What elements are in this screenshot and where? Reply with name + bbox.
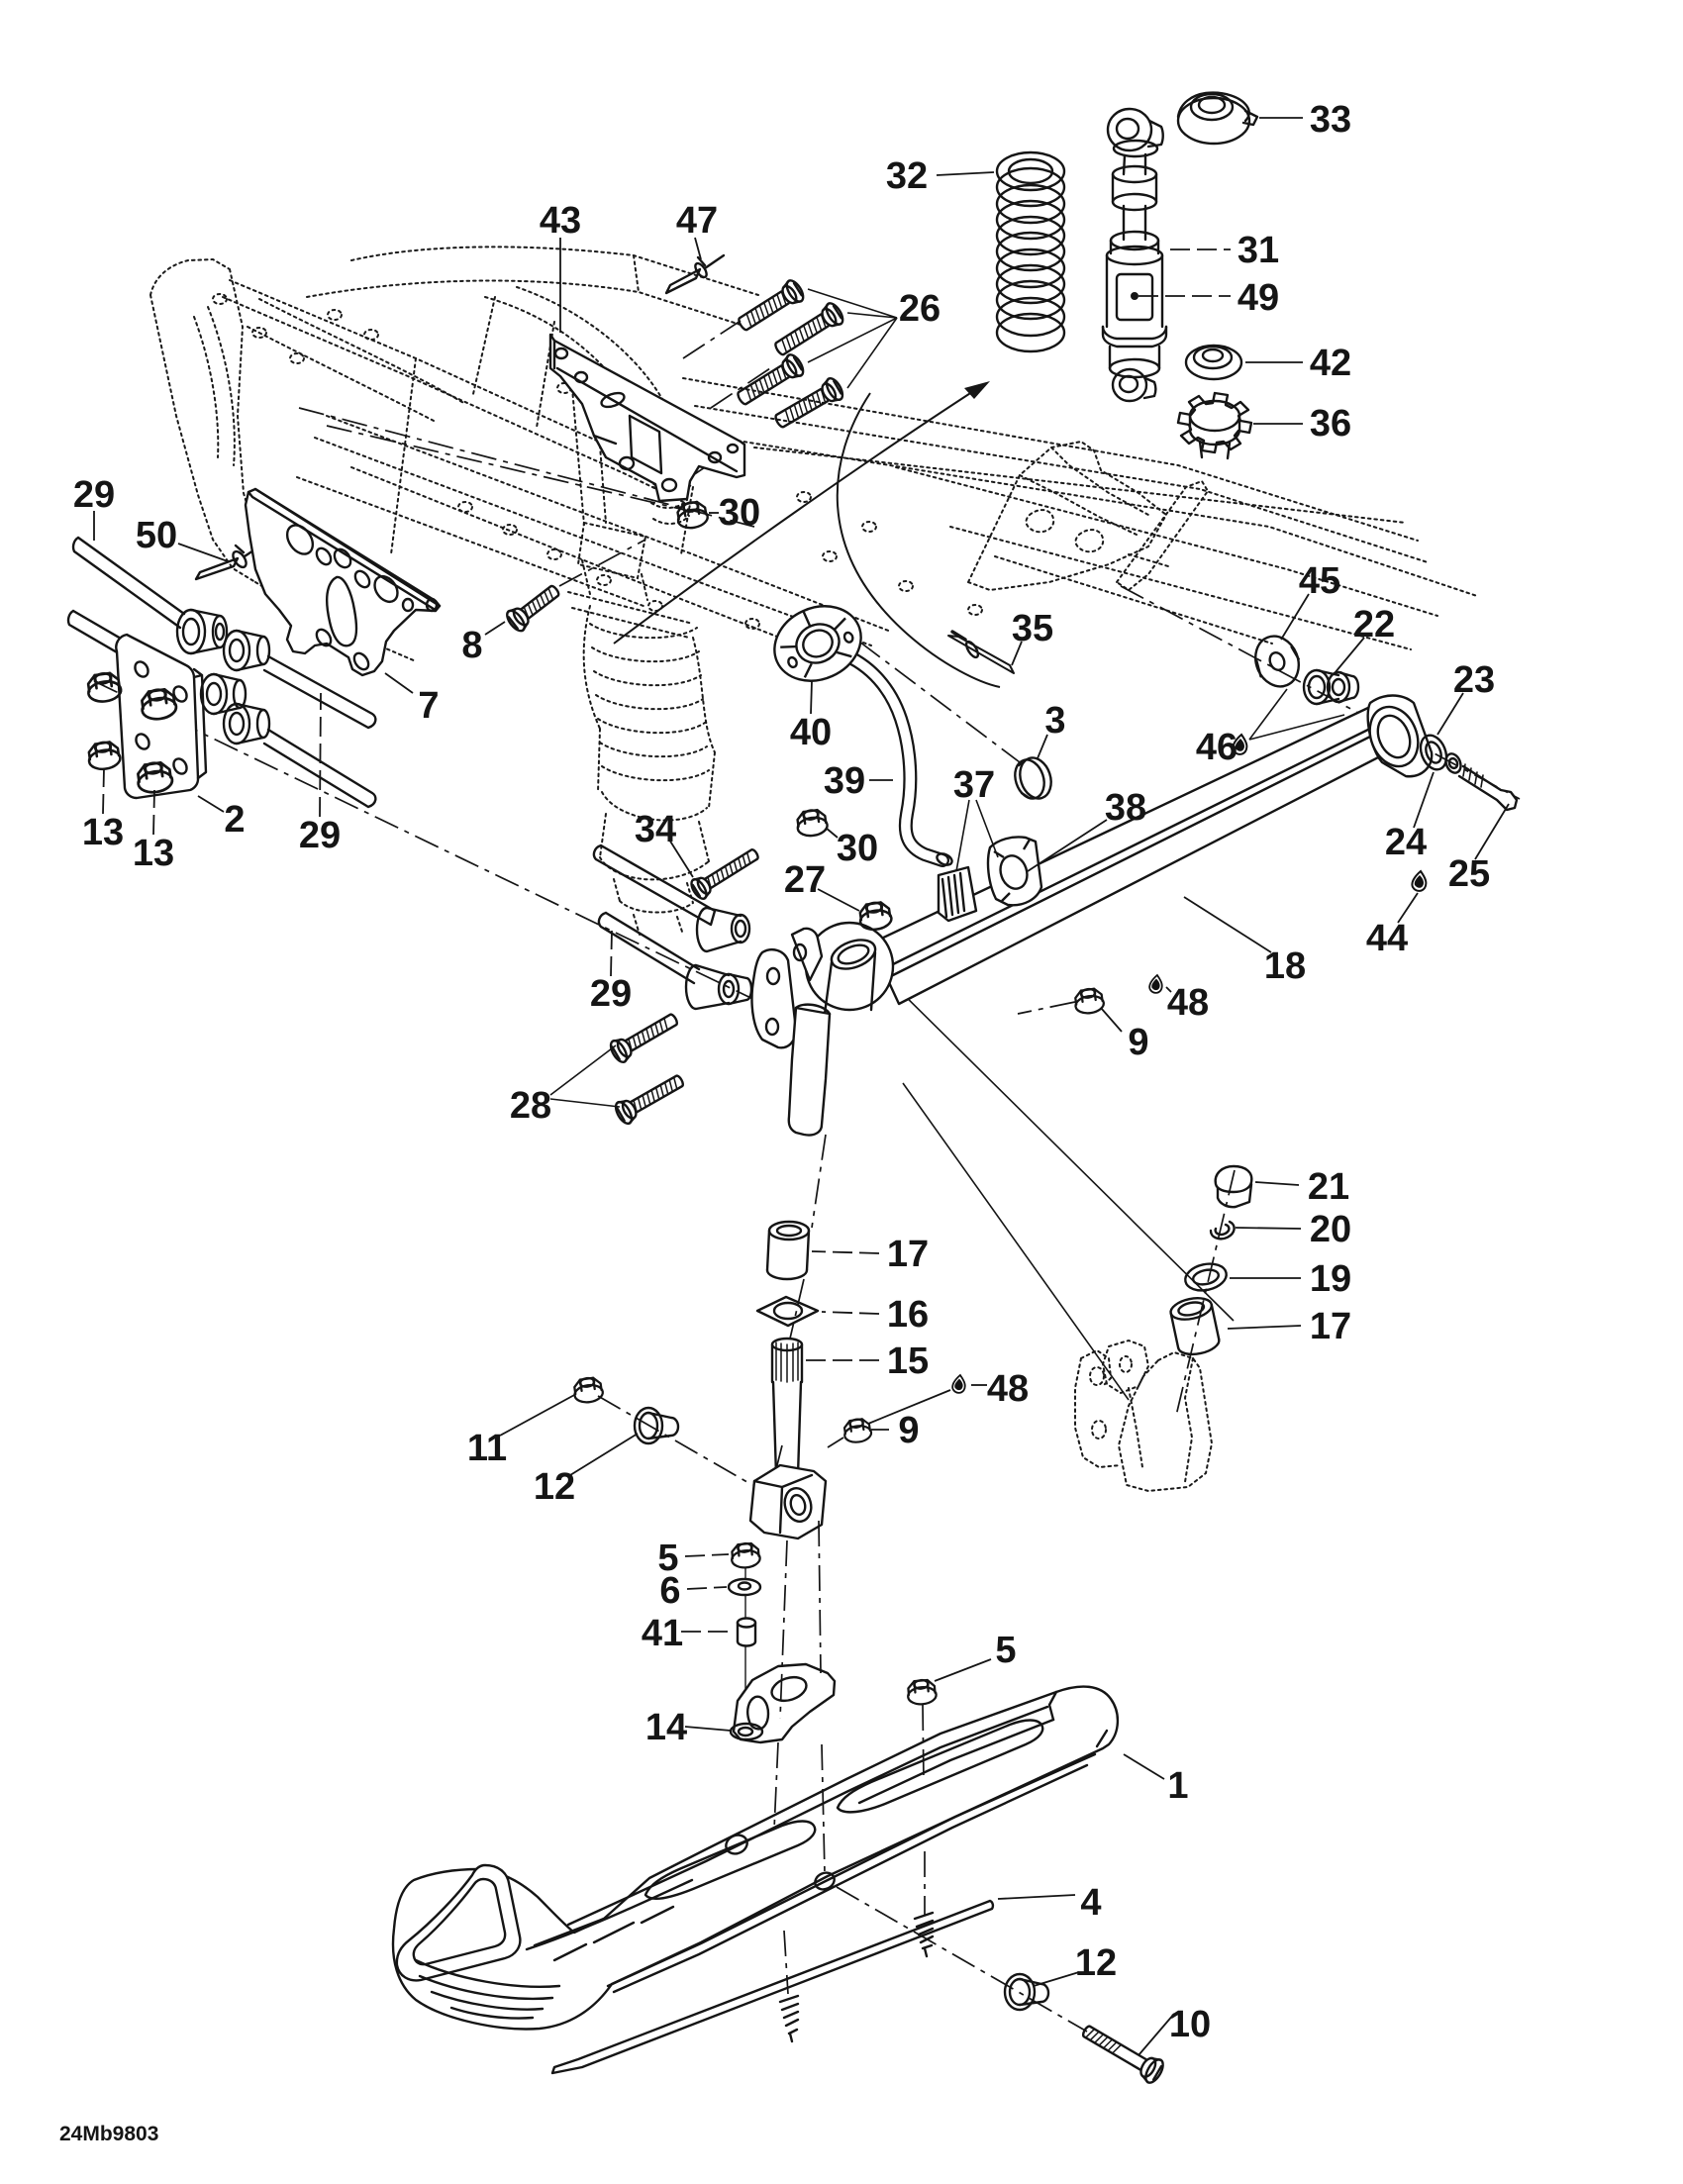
svg-text:18: 18 xyxy=(1264,945,1306,987)
svg-text:45: 45 xyxy=(1299,560,1340,602)
svg-text:41: 41 xyxy=(642,1613,683,1654)
svg-text:16: 16 xyxy=(887,1294,929,1336)
svg-text:29: 29 xyxy=(73,474,115,516)
svg-text:44: 44 xyxy=(1366,918,1408,959)
svg-text:47: 47 xyxy=(676,200,718,242)
svg-text:37: 37 xyxy=(953,764,995,806)
svg-text:29: 29 xyxy=(299,815,341,856)
svg-text:43: 43 xyxy=(540,200,581,242)
svg-text:19: 19 xyxy=(1310,1258,1351,1300)
svg-text:14: 14 xyxy=(645,1707,687,1748)
svg-text:12: 12 xyxy=(1075,1942,1117,1984)
svg-text:30: 30 xyxy=(837,828,878,869)
svg-text:9: 9 xyxy=(1128,1022,1148,1063)
svg-text:40: 40 xyxy=(790,712,832,753)
svg-text:46: 46 xyxy=(1196,727,1237,768)
svg-text:31: 31 xyxy=(1237,230,1279,271)
svg-text:34: 34 xyxy=(635,809,676,850)
svg-text:12: 12 xyxy=(534,1466,575,1508)
svg-text:26: 26 xyxy=(899,288,940,330)
svg-text:4: 4 xyxy=(1080,1882,1101,1924)
svg-text:27: 27 xyxy=(784,859,826,901)
svg-text:35: 35 xyxy=(1012,608,1053,649)
svg-text:38: 38 xyxy=(1105,787,1146,829)
svg-text:33: 33 xyxy=(1310,99,1351,141)
svg-text:48: 48 xyxy=(1167,982,1209,1024)
svg-text:15: 15 xyxy=(887,1340,929,1382)
svg-text:39: 39 xyxy=(824,760,865,802)
svg-text:1: 1 xyxy=(1167,1765,1188,1807)
svg-text:3: 3 xyxy=(1044,700,1065,742)
svg-text:17: 17 xyxy=(1310,1306,1351,1347)
svg-text:24: 24 xyxy=(1385,822,1427,863)
svg-text:50: 50 xyxy=(136,515,177,556)
svg-text:2: 2 xyxy=(224,799,245,841)
svg-text:42: 42 xyxy=(1310,343,1351,384)
svg-text:8: 8 xyxy=(461,625,482,666)
svg-text:24Mb9803: 24Mb9803 xyxy=(59,2123,158,2145)
svg-text:23: 23 xyxy=(1453,659,1495,701)
svg-text:20: 20 xyxy=(1310,1209,1351,1250)
svg-text:13: 13 xyxy=(82,812,124,853)
svg-text:28: 28 xyxy=(510,1085,551,1127)
svg-text:9: 9 xyxy=(898,1410,919,1451)
svg-text:30: 30 xyxy=(719,492,760,534)
svg-text:6: 6 xyxy=(659,1570,680,1612)
svg-text:11: 11 xyxy=(467,1428,507,1469)
svg-text:25: 25 xyxy=(1448,853,1490,895)
svg-text:13: 13 xyxy=(133,833,174,874)
svg-text:48: 48 xyxy=(987,1368,1029,1410)
svg-text:49: 49 xyxy=(1237,277,1279,319)
svg-text:29: 29 xyxy=(590,973,632,1015)
svg-text:21: 21 xyxy=(1308,1166,1349,1208)
svg-text:5: 5 xyxy=(995,1630,1016,1671)
svg-text:17: 17 xyxy=(887,1234,929,1275)
svg-text:10: 10 xyxy=(1169,2004,1211,2045)
svg-text:36: 36 xyxy=(1310,403,1351,445)
svg-text:32: 32 xyxy=(886,155,928,197)
svg-text:22: 22 xyxy=(1353,604,1395,645)
svg-text:7: 7 xyxy=(418,685,439,727)
